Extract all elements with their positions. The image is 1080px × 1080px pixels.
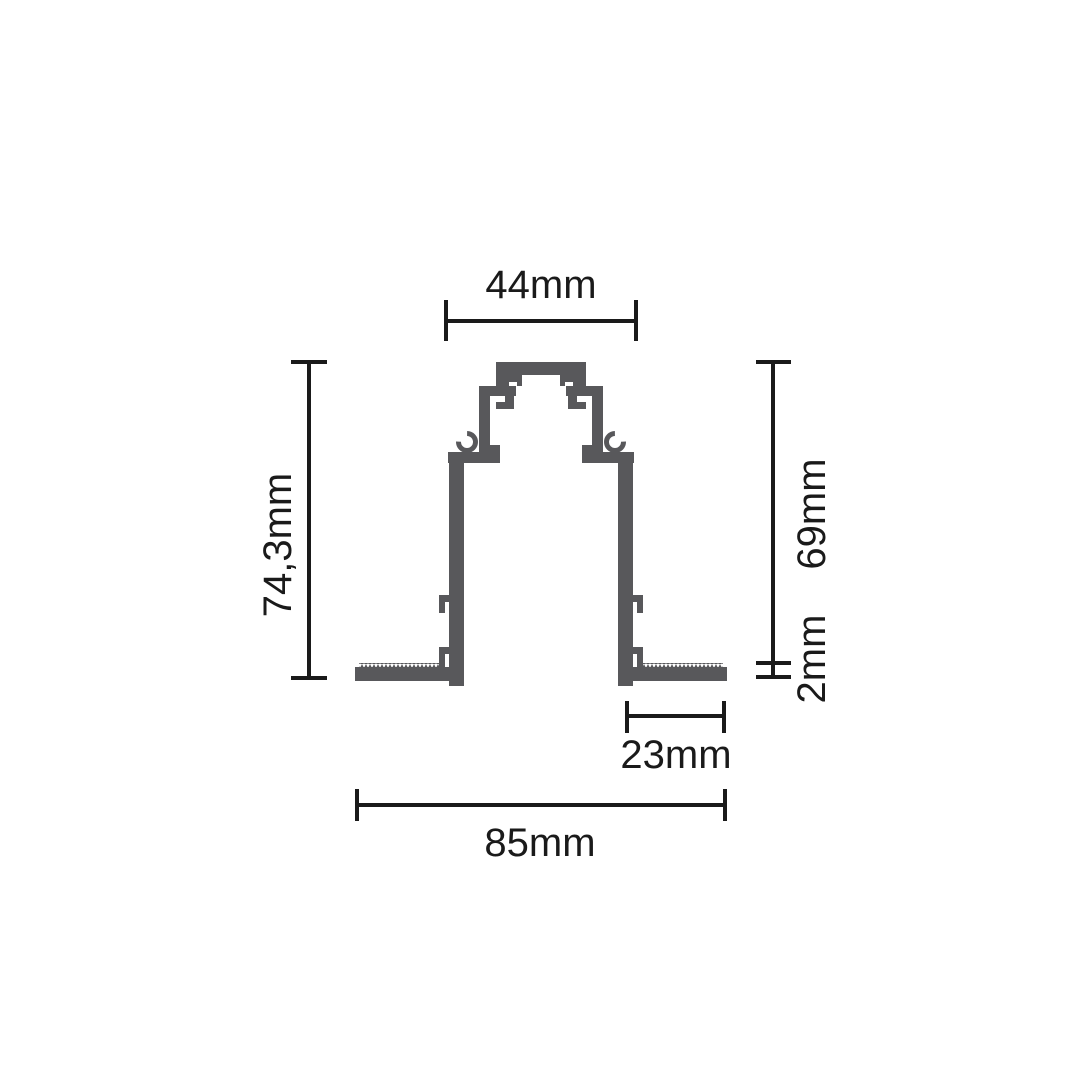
dim-total-width-label: 85mm xyxy=(484,821,595,865)
dim-total-height: 74,3mm xyxy=(256,362,327,678)
dim-flange-width-label: 23mm xyxy=(620,733,731,777)
dim-flange-thickness: 2mm xyxy=(756,615,834,704)
profile-dimension-diagram: 44mm 74,3mm 69mm 2mm 23mm 85mm xyxy=(0,0,1080,1080)
dim-upper-height-line xyxy=(756,362,791,663)
profile-cross-section xyxy=(355,362,727,686)
dim-top-width-label: 44mm xyxy=(485,263,596,307)
dim-flange-thickness-line xyxy=(756,663,791,677)
dim-total-height-label: 74,3mm xyxy=(256,473,300,618)
dim-flange-width: 23mm xyxy=(620,701,731,777)
dim-flange-width-line xyxy=(627,701,724,733)
dim-top-width: 44mm xyxy=(446,263,636,341)
profile-left-half xyxy=(355,362,542,686)
drawing-page: 44mm 74,3mm 69mm 2mm 23mm 85mm xyxy=(0,0,1080,1080)
dim-flange-thickness-label: 2mm xyxy=(790,615,834,704)
dim-total-width: 85mm xyxy=(357,789,725,865)
dim-upper-height-label: 69mm xyxy=(790,458,834,569)
profile-right-half xyxy=(540,362,727,686)
dim-total-width-line xyxy=(357,789,725,821)
